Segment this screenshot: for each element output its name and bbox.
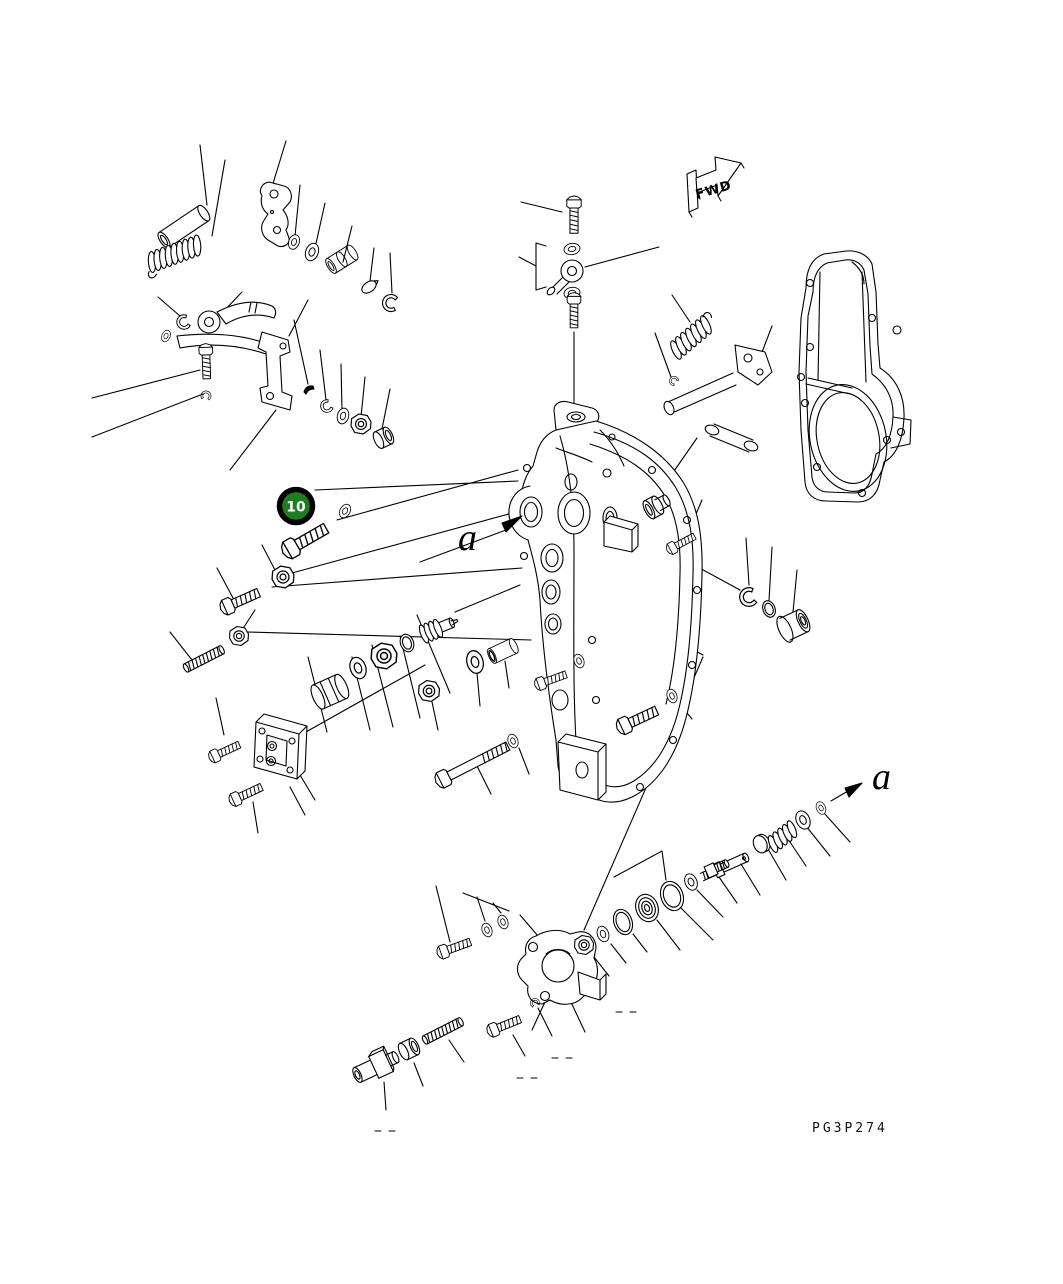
- part-lock-nut: [575, 936, 594, 955]
- part-lock-nut: [230, 627, 249, 646]
- part-lock-nut: [371, 643, 397, 669]
- page-background: [0, 0, 1063, 1284]
- part-lock-nut: [351, 414, 371, 434]
- view-label-a-left: a: [458, 517, 477, 559]
- parts-diagram-canvas: FWD 10 a a PG3P274: [0, 0, 1063, 1284]
- drawing-code: PG3P274: [812, 1121, 888, 1136]
- part-lock-nut: [272, 566, 294, 588]
- part-screw-plug: [419, 681, 440, 702]
- part-inspection-cover: [254, 714, 307, 779]
- diagram-page: FWD 10 a a PG3P274: [0, 0, 1063, 1284]
- callout-10-number[interactable]: 10: [286, 500, 306, 516]
- view-label-a-right: a: [872, 756, 891, 798]
